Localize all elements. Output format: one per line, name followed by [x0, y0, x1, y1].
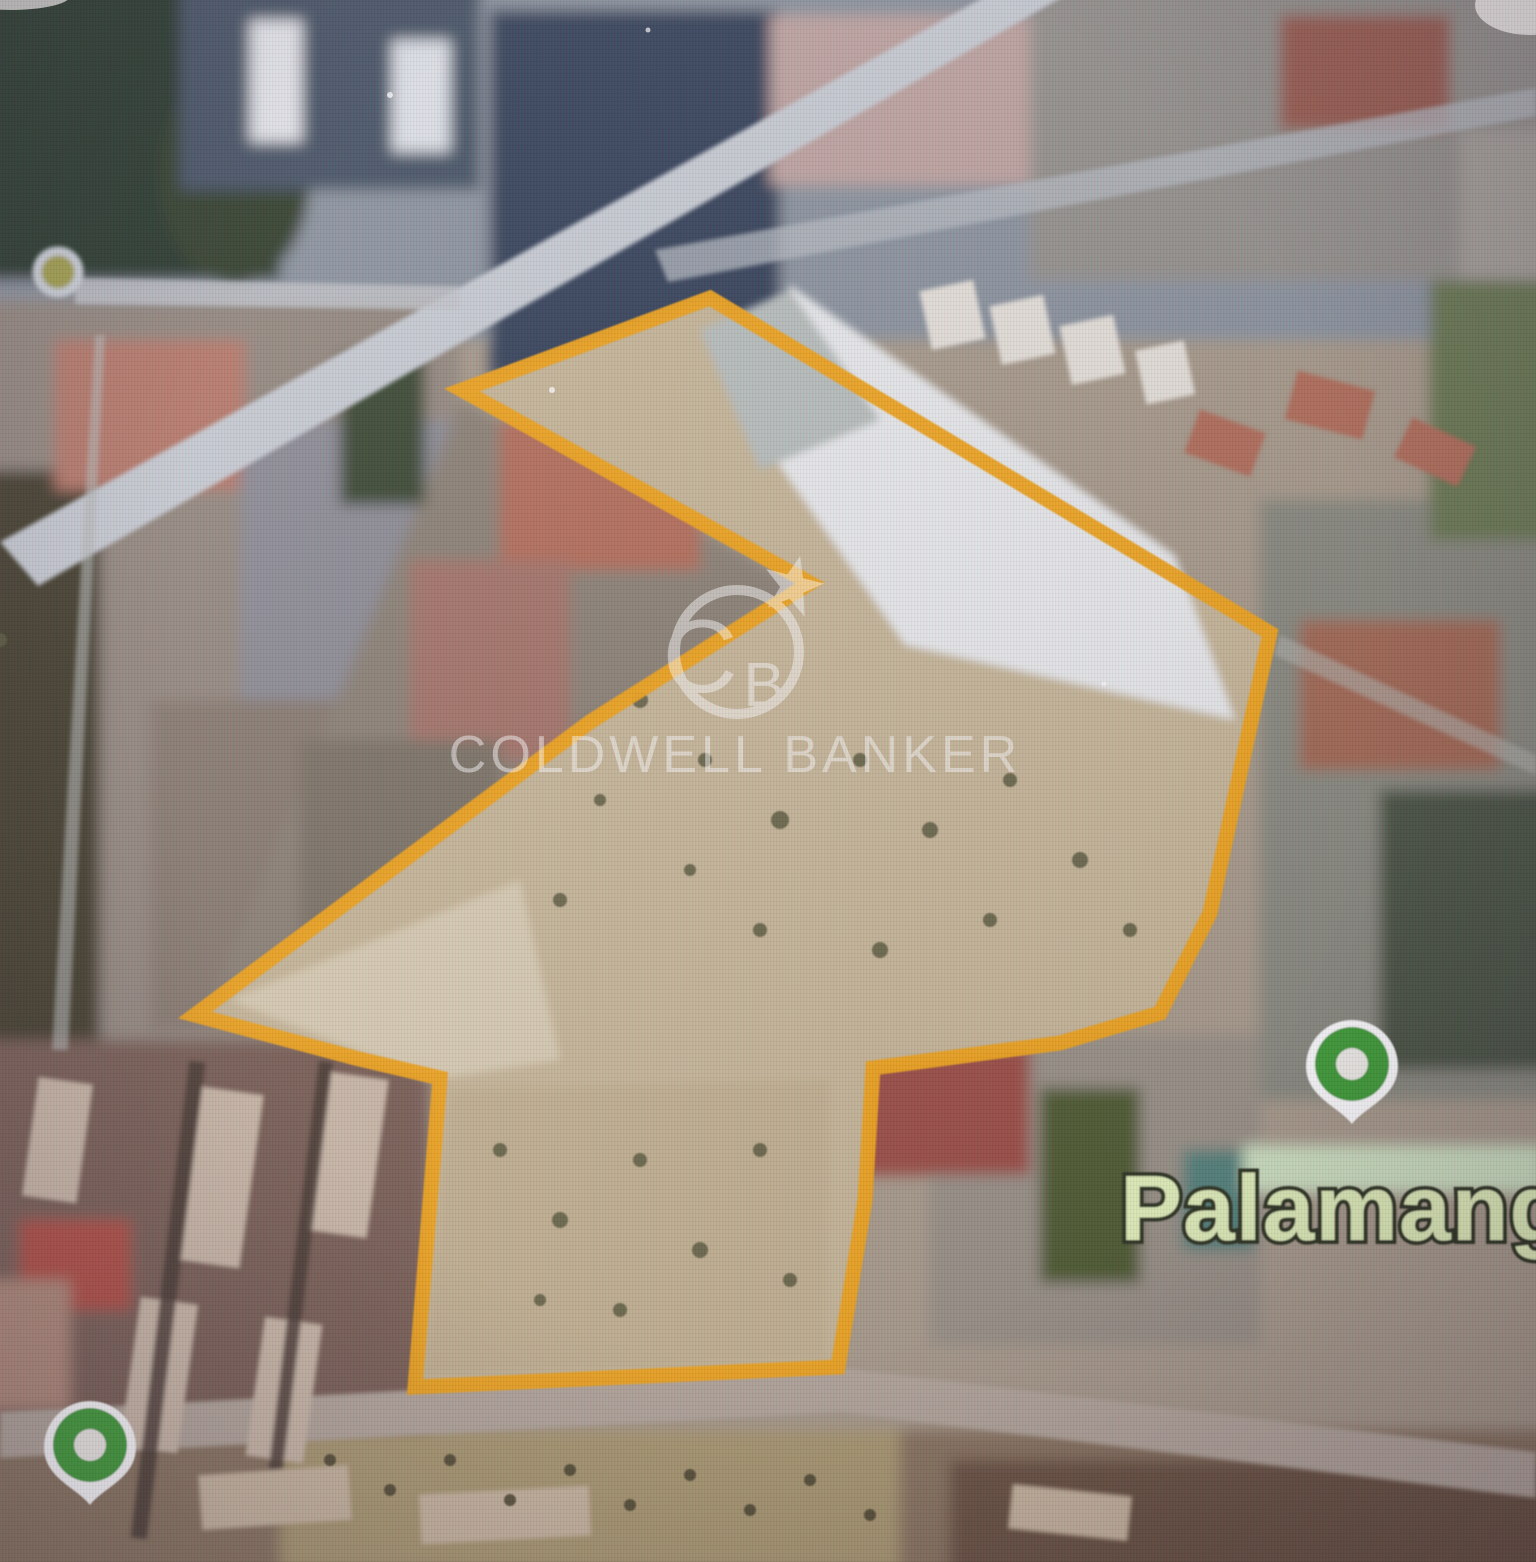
- pin-dot: [1336, 1048, 1368, 1080]
- satellite-screenshot: C B COLDWELL BANKER Palamangano: [0, 0, 1536, 1562]
- cb-monogram-c: C: [662, 599, 737, 715]
- cb-monogram-b: B: [743, 651, 784, 720]
- pin-dot: [74, 1429, 106, 1461]
- watermark-text: COLDWELL BANKER: [449, 726, 1021, 784]
- venue-label: Palamangano: [1120, 1156, 1536, 1260]
- satellite-map[interactable]: C B COLDWELL BANKER Palamangano: [0, 0, 1536, 1562]
